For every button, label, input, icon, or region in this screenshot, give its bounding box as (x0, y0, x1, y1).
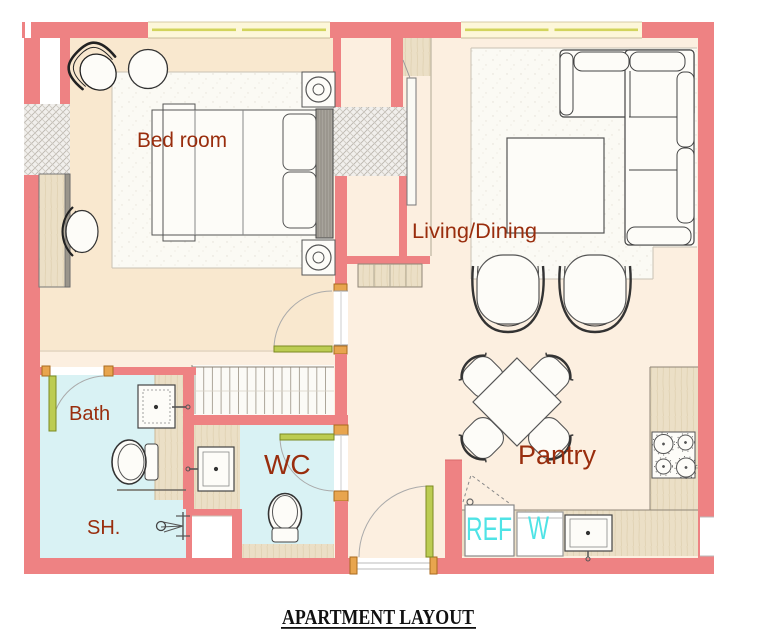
svg-text:WC: WC (264, 449, 311, 480)
svg-text:APARTMENT LAYOUT: APARTMENT LAYOUT (282, 605, 474, 629)
svg-text:REF: REF (466, 511, 512, 547)
svg-text:Living/Dining: Living/Dining (412, 220, 537, 243)
svg-text:Bath: Bath (69, 403, 110, 425)
svg-text:Bed room: Bed room (137, 129, 227, 152)
svg-text:SH.: SH. (87, 517, 120, 539)
svg-text:Pantry: Pantry (518, 440, 597, 470)
svg-text:W: W (528, 510, 550, 546)
